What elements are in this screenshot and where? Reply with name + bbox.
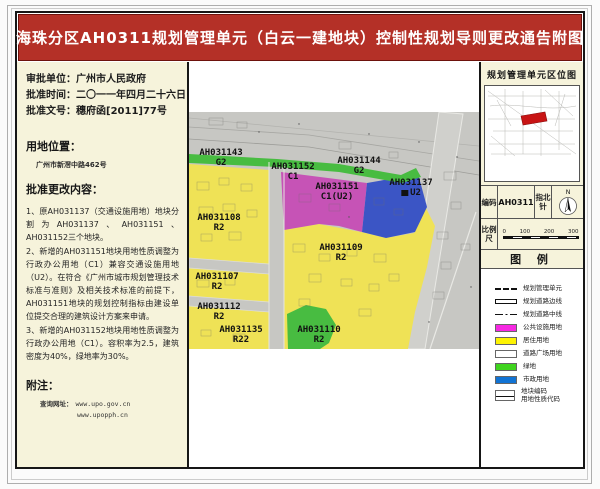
info-table: 编码 AH0311 指北针 N 比例尺 01 bbox=[481, 185, 583, 250]
scale-bar-cell: 0100200300 bbox=[498, 219, 583, 249]
note-url: www.upo.gov.cn bbox=[76, 400, 131, 408]
zone-type: U2 bbox=[389, 188, 432, 198]
map-zone-label: AH031112R2 bbox=[197, 302, 240, 322]
zone-type: R2 bbox=[195, 282, 238, 292]
legend-symbol-dashed-icon bbox=[495, 288, 517, 290]
approval-line: 批准时间：二〇一一年四月二十六日 bbox=[26, 88, 179, 104]
zone-type: R2 bbox=[197, 223, 240, 233]
note-url-label: 查询网址： bbox=[40, 400, 73, 408]
legend-symbol-swatch-icon bbox=[495, 376, 517, 384]
scale-row: 比例尺 0100200300 bbox=[481, 219, 583, 250]
location-map bbox=[484, 85, 580, 182]
location-value: 广州市新滘中路462号 bbox=[36, 160, 179, 170]
approval-label: 批准文号： bbox=[26, 106, 76, 117]
legend-label: 绿地 bbox=[523, 363, 536, 371]
legend-symbol-swatch-icon bbox=[495, 324, 517, 332]
approval-value: 二〇一一年四月二十六日 bbox=[76, 90, 186, 101]
legend-item: 公共设施用地 bbox=[495, 323, 583, 332]
approval-line: 批准文号：穗府函[2011]77号 bbox=[26, 104, 179, 120]
map-zone-label: AH031135R22 bbox=[219, 325, 262, 345]
info-panel: 审批单位：广州市人民政府批准时间：二〇一一年四月二十六日批准文号：穗府函[201… bbox=[17, 62, 189, 467]
legend-panel: 规划管理单元区位图 编码 AH0311 指北针 bbox=[479, 62, 583, 467]
legend-symbol-code-icon bbox=[495, 390, 515, 401]
zone-code: AH031135 bbox=[219, 325, 262, 335]
zone-code: AH031107 bbox=[195, 272, 238, 282]
legend-label: 公共设施用地 bbox=[523, 324, 562, 332]
legend-label: 规划道路中线 bbox=[523, 311, 562, 319]
zone-type: R2 bbox=[297, 335, 340, 345]
zone-code: AH031151 bbox=[315, 182, 358, 192]
code-label: 编码 bbox=[481, 186, 498, 218]
legend-item: 居住用地 bbox=[495, 336, 583, 345]
legend-label: 规划道路边线 bbox=[523, 298, 562, 306]
legend-symbol-swatch_outline-icon bbox=[495, 350, 517, 358]
map-zone-label: AH031110R2 bbox=[297, 325, 340, 345]
map-column: AH031143G2AH031152C1AH031144G2AH031151C1… bbox=[189, 62, 479, 467]
zone-code: AH031108 bbox=[197, 213, 240, 223]
approval-line: 审批单位：广州市人民政府 bbox=[26, 72, 179, 88]
content-paragraph: 1、原AH031137（交通设施用地）地块分割为AH031137、AH03115… bbox=[26, 205, 179, 244]
zone-type: C1 bbox=[271, 172, 314, 182]
code-row: 编码 AH0311 指北针 N bbox=[481, 186, 583, 219]
legend-label: 居住用地 bbox=[523, 337, 549, 345]
zoning-map: AH031143G2AH031152C1AH031144G2AH031151C1… bbox=[189, 112, 479, 349]
legend-label: 地块编码用地性质代码 bbox=[521, 388, 560, 403]
svg-text:N: N bbox=[565, 188, 570, 196]
scale-tick: 300 bbox=[568, 229, 579, 235]
legend-items: 规划管理单元规划道路边线规划道路中线公共设施用地居住用地道路广场用地绿地市政用地… bbox=[481, 269, 583, 467]
note-url-line: www.upopph.cn bbox=[77, 410, 179, 421]
map-zone-label: AH031108R2 bbox=[197, 213, 240, 233]
page-title: 海珠分区AH0311规划管理单元（白云一建地块）控制性规划导则更改通告附图 bbox=[16, 27, 584, 48]
legend-item: 规划道路中线 bbox=[495, 310, 583, 319]
legend-item: 市政用地 bbox=[495, 375, 583, 384]
legend-label: 市政用地 bbox=[523, 376, 549, 384]
map-zone-label: AH031144G2 bbox=[337, 156, 380, 176]
zone-code: AH031137 bbox=[389, 178, 432, 188]
zone-code: AH031109 bbox=[319, 243, 362, 253]
legend-item: 绿地 bbox=[495, 362, 583, 371]
zone-code: AH031152 bbox=[271, 162, 314, 172]
compass-icon: N bbox=[556, 187, 580, 217]
scale-tick: 200 bbox=[544, 229, 555, 235]
zone-code: AH031112 bbox=[197, 302, 240, 312]
legend-symbol-dashdot-icon bbox=[495, 314, 517, 316]
content-paragraph: 2、新增的AH031151地块用地性质调整为行政办公用地（C1）兼容交通设施用地… bbox=[26, 245, 179, 323]
content-paragraph: 3、新增的AH031152地块用地性质调整为行政办公用地（C1）。容积率为2.5… bbox=[26, 324, 179, 363]
legend-symbol-solid-icon bbox=[495, 299, 517, 304]
zone-type: R22 bbox=[219, 335, 262, 345]
legend-item: 道路广场用地 bbox=[495, 349, 583, 358]
code-value: AH0311 bbox=[498, 186, 535, 218]
columns: 审批单位：广州市人民政府批准时间：二〇一一年四月二十六日批准文号：穗府函[201… bbox=[17, 62, 583, 467]
location-map-drawing bbox=[485, 86, 579, 181]
scale-ticks: 0100200300 bbox=[503, 229, 579, 235]
zone-code: AH031110 bbox=[297, 325, 340, 335]
zone-type: G2 bbox=[199, 158, 242, 168]
legend-label: 规划管理单元 bbox=[523, 285, 562, 293]
compass-label: 指北针 bbox=[535, 186, 552, 218]
location-map-title: 规划管理单元区位图 bbox=[481, 68, 583, 81]
note-url-line: 查询网址：www.upo.gov.cn bbox=[40, 399, 179, 410]
legend-title: 图 例 bbox=[481, 250, 583, 269]
legend-item: 规划道路边线 bbox=[495, 297, 583, 306]
title-bar: 海珠分区AH0311规划管理单元（白云一建地块）控制性规划导则更改通告附图 bbox=[18, 14, 582, 61]
map-zone-label: AH031107R2 bbox=[195, 272, 238, 292]
map-zone-label: AH031143G2 bbox=[199, 148, 242, 168]
content-paragraphs: 1、原AH031137（交通设施用地）地块分割为AH031137、AH03115… bbox=[26, 205, 179, 363]
map-zone-label: AH031109R2 bbox=[319, 243, 362, 263]
legend-label: 道路广场用地 bbox=[523, 350, 562, 358]
approval-label: 审批单位： bbox=[26, 74, 76, 85]
scale-tick: 100 bbox=[520, 229, 531, 235]
scale-tick: 0 bbox=[503, 229, 507, 235]
legend-symbol-swatch-icon bbox=[495, 337, 517, 345]
zone-type: G2 bbox=[337, 166, 380, 176]
zone-type: R2 bbox=[197, 312, 240, 322]
scale-bar bbox=[503, 236, 579, 240]
building-marker-icon bbox=[401, 190, 408, 196]
map-zone-label: AH031152C1 bbox=[271, 162, 314, 182]
content-heading: 批准更改内容： bbox=[26, 181, 179, 197]
approval-value: 广州市人民政府 bbox=[76, 74, 146, 85]
zone-type: R2 bbox=[319, 253, 362, 263]
zone-code: AH031143 bbox=[199, 148, 242, 158]
location-heading: 用地位置： bbox=[26, 138, 179, 154]
legend-item: 地块编码用地性质代码 bbox=[495, 388, 583, 403]
plan-sheet: 海珠分区AH0311规划管理单元（白云一建地块）控制性规划导则更改通告附图 审批… bbox=[15, 11, 585, 469]
compass-cell: N bbox=[552, 186, 583, 218]
zone-type: C1(U2) bbox=[315, 192, 358, 202]
approval-label: 批准时间： bbox=[26, 90, 76, 101]
approval-lines: 审批单位：广州市人民政府批准时间：二〇一一年四月二十六日批准文号：穗府函[201… bbox=[26, 72, 179, 120]
note-urls: 查询网址：www.upo.gov.cnwww.upopph.cn bbox=[40, 399, 179, 421]
scale-label: 比例尺 bbox=[481, 219, 498, 249]
legend-item: 规划管理单元 bbox=[495, 284, 583, 293]
approval-value: 穗府函[2011]77号 bbox=[76, 106, 167, 117]
zone-code: AH031144 bbox=[337, 156, 380, 166]
note-url: www.upopph.cn bbox=[77, 411, 128, 419]
note-heading: 附注： bbox=[26, 377, 179, 393]
map-zone-label: AH031137U2 bbox=[389, 178, 432, 198]
map-zone-label: AH031151C1(U2) bbox=[315, 182, 358, 202]
legend-symbol-swatch-icon bbox=[495, 363, 517, 371]
unit-highlight bbox=[521, 112, 547, 125]
